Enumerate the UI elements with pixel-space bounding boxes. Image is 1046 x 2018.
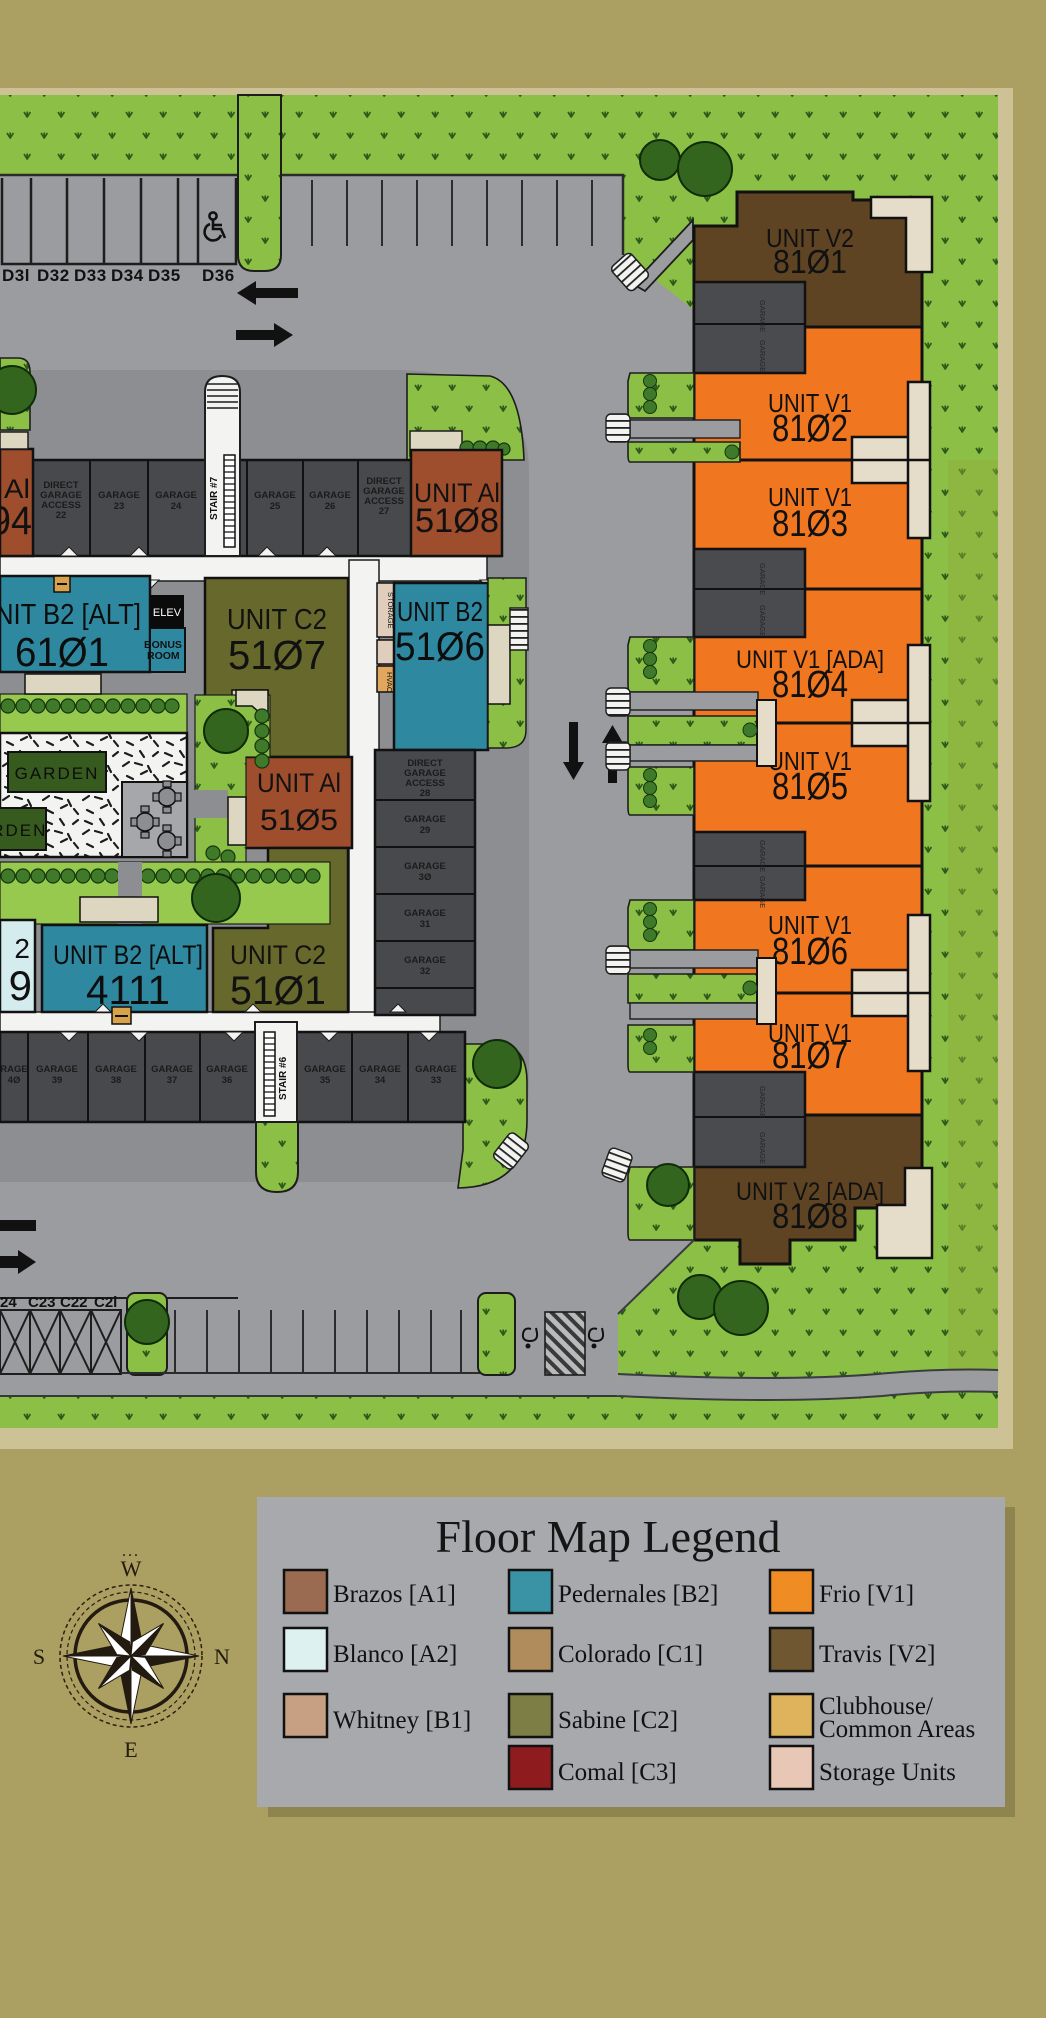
svg-text:D32: D32 bbox=[37, 266, 70, 285]
svg-text:Storage Units: Storage Units bbox=[819, 1759, 956, 1786]
svg-text:Common Areas: Common Areas bbox=[819, 1716, 975, 1743]
svg-text:GARAGE: GARAGE bbox=[155, 490, 197, 501]
svg-text:35: 35 bbox=[320, 1075, 331, 1086]
svg-text:GARAGE: GARAGE bbox=[95, 1064, 137, 1075]
svg-text:GARAGE: GARAGE bbox=[404, 861, 446, 872]
svg-text:39: 39 bbox=[52, 1075, 63, 1086]
svg-text:36: 36 bbox=[222, 1075, 233, 1086]
svg-text:81Ø8: 81Ø8 bbox=[772, 1197, 848, 1236]
svg-text:61Ø1: 61Ø1 bbox=[15, 629, 109, 675]
svg-text:GARAGE: GARAGE bbox=[758, 876, 767, 908]
svg-text:Pedernales [B2]: Pedernales [B2] bbox=[558, 1581, 718, 1608]
svg-text:37: 37 bbox=[167, 1075, 178, 1086]
svg-text:4Ø: 4Ø bbox=[8, 1075, 21, 1086]
svg-text:29: 29 bbox=[420, 825, 431, 836]
svg-text:26: 26 bbox=[325, 501, 336, 512]
svg-text:GARDEN: GARDEN bbox=[15, 764, 100, 783]
svg-text:ROOM: ROOM bbox=[147, 650, 180, 662]
svg-text:28: 28 bbox=[420, 788, 431, 799]
svg-text:UNIT C2: UNIT C2 bbox=[230, 940, 326, 970]
svg-text:GARAGE: GARAGE bbox=[206, 1064, 248, 1075]
svg-text:...: ... bbox=[122, 1543, 140, 1560]
svg-text:31: 31 bbox=[420, 919, 431, 930]
svg-text:UNIT B2 [ALT]: UNIT B2 [ALT] bbox=[53, 940, 203, 970]
svg-text:GARAGE: GARAGE bbox=[36, 1064, 78, 1075]
svg-text:UNIT B2: UNIT B2 bbox=[397, 596, 483, 627]
svg-text:81Ø1: 81Ø1 bbox=[773, 243, 847, 280]
svg-text:Colorado [C1]: Colorado [C1] bbox=[558, 1641, 703, 1668]
svg-text:51Ø8: 51Ø8 bbox=[415, 502, 499, 540]
svg-text:GARAGE: GARAGE bbox=[758, 840, 767, 872]
svg-text:Travis [V2]: Travis [V2] bbox=[819, 1641, 935, 1668]
svg-text:C22: C22 bbox=[60, 1294, 88, 1311]
svg-text:D33: D33 bbox=[74, 266, 107, 285]
svg-text:GARAGE: GARAGE bbox=[254, 490, 296, 501]
svg-text:GARAGE: GARAGE bbox=[758, 605, 767, 637]
svg-text:STAIR #7: STAIR #7 bbox=[209, 476, 220, 520]
svg-text:94: 94 bbox=[0, 499, 32, 543]
svg-text:RAGE: RAGE bbox=[0, 1064, 27, 1075]
svg-text:81Ø6: 81Ø6 bbox=[772, 931, 848, 973]
svg-text:Brazos [A1]: Brazos [A1] bbox=[333, 1581, 456, 1608]
svg-text:GARDEN: GARDEN bbox=[0, 821, 47, 840]
svg-text:81Ø3: 81Ø3 bbox=[772, 503, 848, 544]
svg-text:Blanco [A2]: Blanco [A2] bbox=[333, 1641, 457, 1668]
svg-text:D36: D36 bbox=[202, 266, 235, 285]
svg-text:GARAGE: GARAGE bbox=[415, 1064, 457, 1075]
svg-text:25: 25 bbox=[270, 501, 281, 512]
svg-text:GARAGE: GARAGE bbox=[359, 1064, 401, 1075]
svg-text:38: 38 bbox=[111, 1075, 122, 1086]
svg-text:81Ø5: 81Ø5 bbox=[772, 766, 848, 808]
svg-text:27: 27 bbox=[379, 506, 390, 517]
svg-text:4111: 4111 bbox=[86, 967, 170, 1013]
svg-text:D3l: D3l bbox=[2, 266, 30, 285]
svg-text:GARAGE: GARAGE bbox=[309, 490, 351, 501]
svg-text:HVAC: HVAC bbox=[385, 672, 394, 693]
svg-text:GARAGE: GARAGE bbox=[758, 563, 767, 595]
svg-text:GARAGE: GARAGE bbox=[404, 955, 446, 966]
svg-text:STAIR #6: STAIR #6 bbox=[278, 1056, 289, 1100]
svg-text:GARAGE: GARAGE bbox=[758, 1086, 767, 1118]
svg-text:51Ø7: 51Ø7 bbox=[228, 632, 326, 678]
svg-text:UNIT Al: UNIT Al bbox=[257, 768, 341, 798]
svg-text:9: 9 bbox=[9, 962, 32, 1009]
svg-text:E: E bbox=[124, 1737, 137, 1762]
svg-text:51Ø6: 51Ø6 bbox=[395, 625, 485, 669]
svg-text:24: 24 bbox=[171, 501, 182, 512]
svg-text:81Ø2: 81Ø2 bbox=[772, 408, 848, 450]
svg-text:81Ø7: 81Ø7 bbox=[772, 1035, 848, 1077]
svg-text:N: N bbox=[214, 1644, 230, 1669]
svg-text:51Ø5: 51Ø5 bbox=[260, 804, 338, 837]
svg-text:GARAGE: GARAGE bbox=[758, 340, 767, 372]
svg-text:GARAGE: GARAGE bbox=[758, 300, 767, 332]
svg-text:ELEV: ELEV bbox=[153, 607, 182, 619]
svg-text:81Ø4: 81Ø4 bbox=[772, 664, 848, 706]
svg-text:22: 22 bbox=[56, 510, 67, 521]
svg-text:Frio [V1]: Frio [V1] bbox=[819, 1581, 914, 1608]
svg-text:23: 23 bbox=[114, 501, 125, 512]
svg-text:Sabine [C2]: Sabine [C2] bbox=[558, 1707, 678, 1734]
svg-text:33: 33 bbox=[431, 1075, 442, 1086]
svg-text:32: 32 bbox=[420, 966, 431, 977]
svg-text:24: 24 bbox=[0, 1294, 17, 1311]
svg-text:2: 2 bbox=[14, 933, 30, 964]
svg-text:GARAGE: GARAGE bbox=[404, 908, 446, 919]
svg-text:C2l: C2l bbox=[94, 1294, 117, 1311]
svg-text:51Ø1: 51Ø1 bbox=[230, 969, 326, 1013]
svg-text:GARAGE: GARAGE bbox=[304, 1064, 346, 1075]
svg-text:Comal [C3]: Comal [C3] bbox=[558, 1759, 677, 1786]
svg-text:GARAGE: GARAGE bbox=[758, 1132, 767, 1164]
svg-text:GARAGE: GARAGE bbox=[98, 490, 140, 501]
svg-text:S: S bbox=[33, 1644, 45, 1669]
svg-text:GARAGE: GARAGE bbox=[151, 1064, 193, 1075]
svg-text:NIT B2 [ALT]: NIT B2 [ALT] bbox=[0, 599, 141, 631]
svg-text:C23: C23 bbox=[28, 1294, 56, 1311]
svg-text:34: 34 bbox=[375, 1075, 386, 1086]
svg-text:D35: D35 bbox=[148, 266, 181, 285]
svg-text:GARAGE: GARAGE bbox=[404, 814, 446, 825]
svg-text:Floor Map Legend: Floor Map Legend bbox=[436, 1511, 781, 1562]
svg-text:Whitney [B1]: Whitney [B1] bbox=[333, 1707, 471, 1734]
svg-text:D34: D34 bbox=[111, 266, 144, 285]
svg-text:3Ø: 3Ø bbox=[419, 872, 432, 883]
